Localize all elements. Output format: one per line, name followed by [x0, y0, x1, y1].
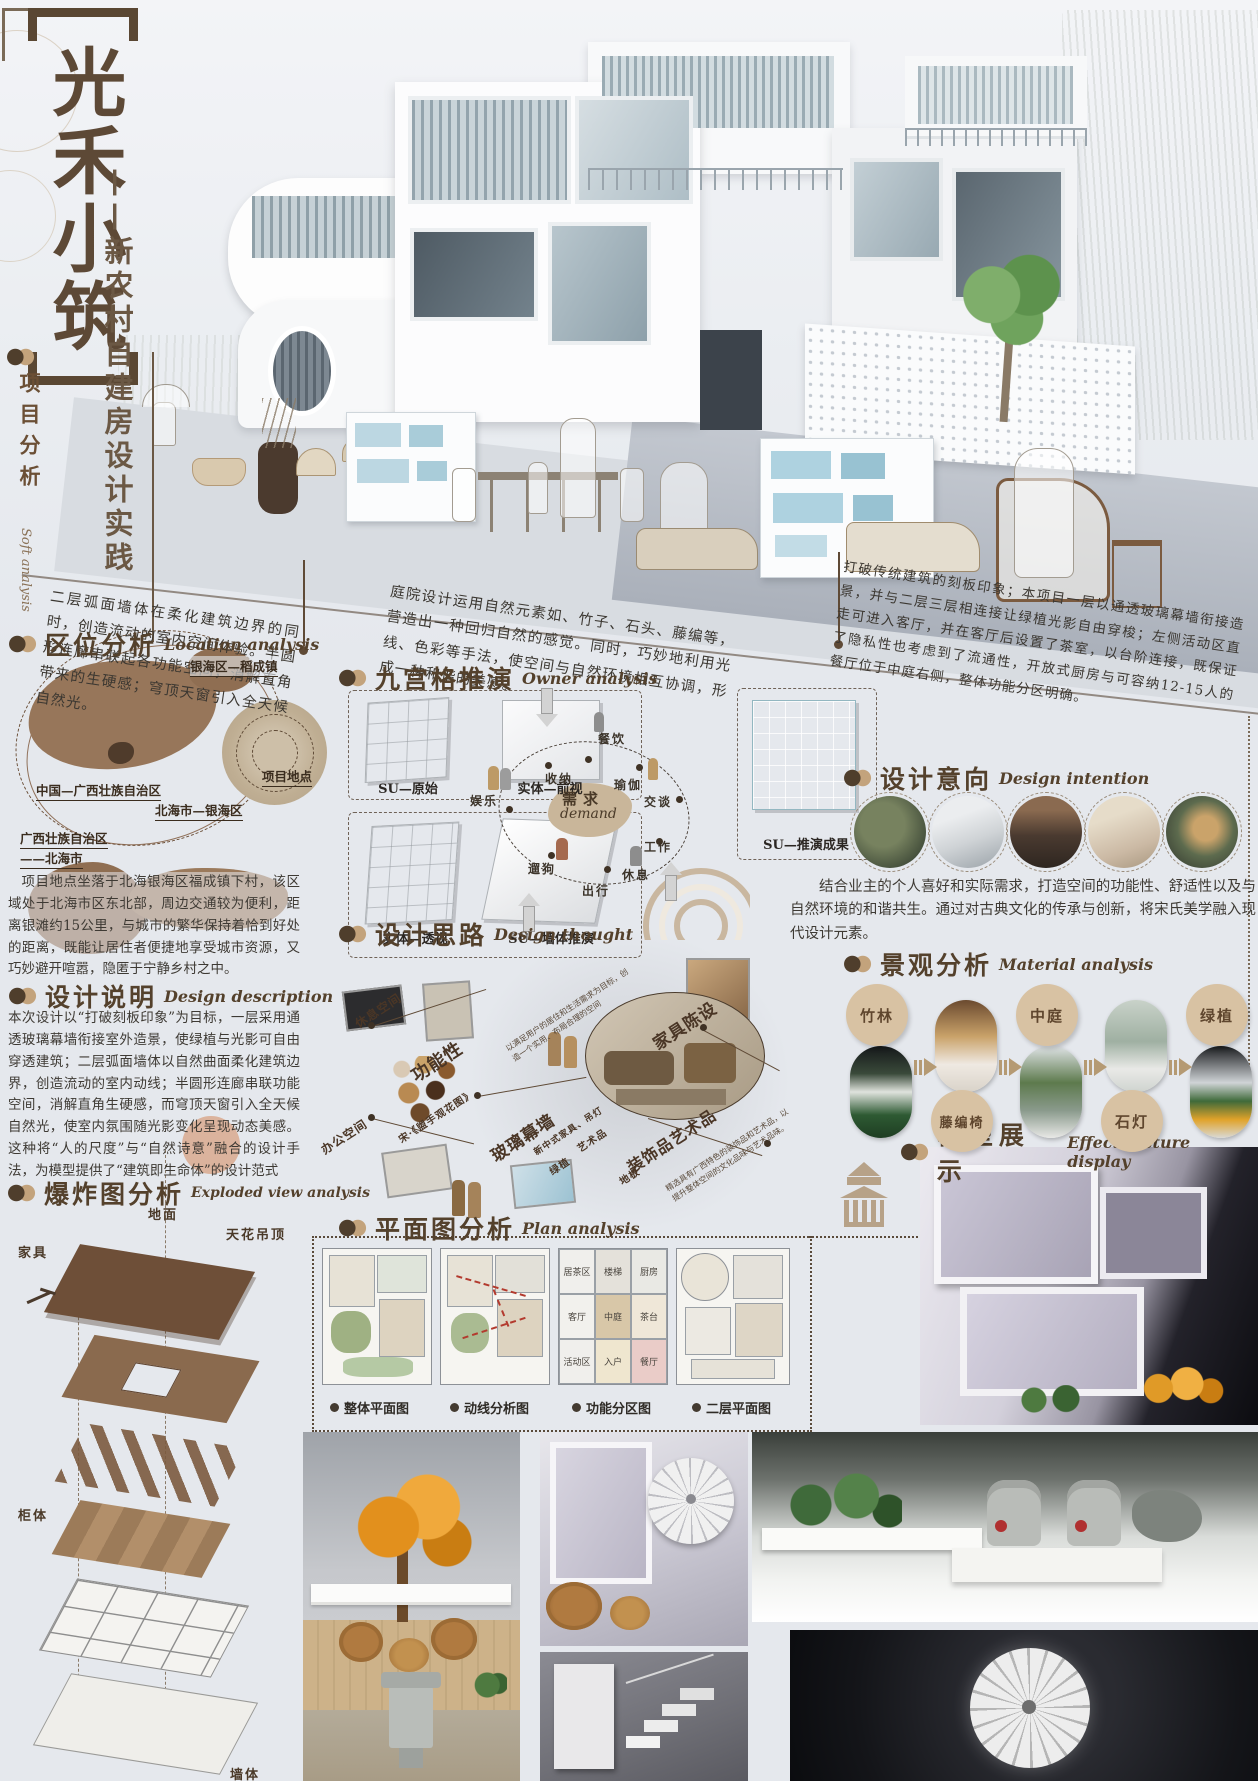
room-label: 餐厅	[640, 1355, 658, 1368]
room-label: 中庭	[604, 1310, 622, 1323]
house-window-slats-top	[408, 96, 571, 204]
section-plan: 平面图分析 Plan analysis	[338, 1210, 640, 1246]
section-bullet-icon	[7, 1184, 37, 1202]
material-heading: 景观分析	[880, 946, 992, 982]
thought-dot	[368, 1022, 375, 1029]
bowl-stack	[192, 458, 246, 486]
flower-vase	[258, 442, 298, 514]
room-label: 厨房	[640, 1265, 658, 1278]
house-window-glass-mid	[410, 228, 538, 321]
rings-motif	[640, 868, 750, 940]
thought-dot	[474, 1092, 481, 1099]
exploded-walls-plane	[39, 1578, 249, 1677]
thought-heading-en: Design thought	[494, 925, 633, 944]
map-label-city-2: ——北海市	[20, 848, 83, 869]
section-bullet-icon	[900, 1143, 930, 1161]
model-photo-corner	[920, 1147, 1258, 1425]
section-bullet-icon	[843, 955, 873, 973]
plan-caption-3: 二层平面图	[692, 1398, 771, 1417]
thought-dot	[700, 1024, 707, 1031]
need-storage: 收纳	[545, 770, 573, 787]
dining-table-sketch	[478, 472, 618, 480]
model-photo-stair-side	[540, 1652, 748, 1781]
dining-chair-sketch-2	[620, 468, 644, 522]
arrow-up-icon-2	[660, 862, 682, 901]
title-divider-line	[152, 352, 154, 642]
exploded-roof-plane	[44, 1244, 255, 1340]
plan-heading-en: Plan analysis	[522, 1219, 640, 1238]
caption-bullet-icon	[330, 1403, 339, 1412]
flow-arrow-icon	[999, 1058, 1022, 1076]
plan-second-floor	[676, 1248, 790, 1385]
model-heading-en: Effect picture display	[1067, 1133, 1258, 1171]
map-label-district: 北海市—银海区	[155, 800, 243, 821]
tree-foliage	[948, 252, 1073, 347]
house-railing	[588, 168, 843, 190]
material-label-text: 竹林	[860, 1005, 894, 1026]
plan-circulation	[440, 1248, 550, 1385]
caption-text: 功能分区图	[586, 1398, 651, 1417]
intention-heading-en: Design intention	[999, 769, 1149, 788]
side-label-bullet-icon	[6, 348, 36, 366]
room-label: 活动区	[563, 1355, 590, 1368]
map-label-china: 中国—广西壮族自治区	[36, 780, 161, 801]
house-right-window1	[850, 158, 943, 261]
flow-arrow-icon	[1084, 1058, 1107, 1076]
plan-caption-0: 整体平面图	[330, 1398, 409, 1417]
need-travel: 出行	[582, 882, 610, 899]
section-bullet-icon	[843, 769, 873, 787]
map-label-city-1: 广西壮族自治区	[20, 828, 108, 849]
rooftop-railing	[905, 128, 1087, 146]
location-body: 项目地点坐落于北海银海区福成镇下村，该区域处于北海市区东北部，周边交通较为便利，…	[8, 872, 300, 981]
model-photo-courtyard	[303, 1432, 520, 1781]
need-dot	[548, 852, 555, 859]
plan-zoning: 居茶区 楼梯 厨房 客厅 中庭 茶台 活动区 入户 餐厅	[558, 1248, 668, 1385]
vase-branches	[262, 398, 296, 448]
dining-chair-sketch	[452, 468, 476, 522]
section-material: 景观分析 Material analysis	[843, 946, 1153, 982]
need-dining: 餐饮	[598, 730, 626, 747]
owner-heading: 九宫格推演	[375, 660, 515, 696]
people-silhouette	[564, 1036, 577, 1068]
need-fun: 娱乐	[470, 792, 498, 809]
owner-heading-en: Owner analysis	[522, 669, 657, 688]
map-label-town: 银海区—稻成镇	[190, 656, 278, 677]
model-photo-spiral-dark	[790, 1630, 1258, 1781]
standing-elder-sketch	[560, 418, 596, 518]
model-photo-stair-top	[540, 1432, 748, 1646]
plan-caption-1: 动线分析图	[450, 1398, 529, 1417]
exploded-label-cabinet: 柜体	[18, 1505, 48, 1524]
material-heading-en: Material analysis	[999, 955, 1153, 974]
exploded-label-wall: 墙体	[230, 1764, 260, 1781]
section-intention: 设计意向 Design intention	[843, 760, 1149, 796]
caption-bullet-icon	[572, 1403, 581, 1412]
room-label: 楼梯	[604, 1265, 622, 1278]
exploded-furniture-plane	[55, 1423, 246, 1506]
caption-bullet-icon	[450, 1403, 459, 1412]
intention-photo-interior	[1162, 792, 1242, 872]
need-dot	[656, 838, 663, 845]
room-label: 客厅	[568, 1310, 586, 1323]
people-figure	[648, 758, 658, 780]
umbrella-lady-sketch	[152, 402, 176, 446]
people-figure	[630, 846, 642, 866]
intention-heading: 设计意向	[880, 760, 992, 796]
section-bullet-icon	[8, 635, 38, 653]
design-desc-heading-en: Design description	[164, 987, 333, 1006]
model-photo-lions	[752, 1432, 1258, 1622]
house-curved-slats	[252, 196, 402, 258]
need-dot	[585, 756, 592, 763]
section-design-desc: 设计说明 Design description	[8, 978, 333, 1014]
need-dot	[676, 796, 683, 803]
need-dot	[545, 762, 552, 769]
design-desc-heading: 设计说明	[45, 978, 157, 1014]
section-thought: 设计思路 Design thought	[338, 916, 633, 952]
poster-subtitle: ——新农村自建房设计实践	[96, 168, 138, 668]
need-rest: 休息	[622, 866, 650, 883]
title-bracket-top-icon	[28, 8, 138, 41]
section-bullet-icon	[338, 669, 368, 687]
need-dog: 遛狗	[528, 860, 556, 877]
house-entrance	[700, 330, 762, 430]
flow-arrow-icon	[1169, 1058, 1192, 1076]
plan-overall	[322, 1248, 432, 1385]
material-label-stonelamp: 石灯	[1101, 1090, 1163, 1152]
material-photo-rattan	[935, 1000, 997, 1092]
side-label: 项目分析	[14, 372, 44, 532]
thought-ref-image	[381, 1144, 453, 1199]
need-dot	[506, 806, 513, 813]
demand-title-en: demand	[560, 806, 617, 822]
material-label-text: 石灯	[1115, 1111, 1149, 1132]
thought-heading: 设计思路	[375, 916, 487, 952]
need-talk: 交谈	[644, 793, 672, 810]
location-heading-en: Location analysis	[164, 635, 319, 654]
need-dot	[604, 866, 611, 873]
thought-center-image	[585, 992, 765, 1120]
thought-node-office: 办公空间	[318, 1115, 371, 1158]
section-bullet-icon	[8, 987, 38, 1005]
intention-photo-modern	[928, 792, 1008, 872]
lounge-chair	[636, 528, 758, 570]
exploded-base-plane	[33, 1673, 258, 1775]
thought-ref-image	[422, 980, 474, 1041]
caption-text: 整体平面图	[344, 1398, 409, 1417]
section-bullet-icon	[338, 1219, 368, 1237]
section-bullet-icon	[338, 925, 368, 943]
exploded-label-ceiling: 天花吊顶	[226, 1224, 286, 1243]
room-label: 入户	[604, 1355, 622, 1368]
caption-text: 二层平面图	[706, 1398, 771, 1417]
material-photo-lantern	[1105, 1000, 1167, 1092]
child-sketch	[528, 462, 548, 514]
room-label: 茶台	[640, 1310, 658, 1323]
need-yoga: 瑜伽	[614, 776, 642, 793]
thought-dot	[764, 1140, 771, 1147]
material-label-text: 中庭	[1030, 1005, 1064, 1026]
intention-photo-garden	[850, 792, 930, 872]
reading-man-sketch	[1014, 448, 1074, 578]
cube-label-0: SU—原始	[358, 778, 458, 797]
people-figure	[594, 712, 604, 732]
exploded-label-ground: 地面	[148, 1204, 178, 1223]
map-label-site: 项目地点	[262, 766, 312, 787]
design-desc-body: 本次设计以“打破刻板印象”为目标，一层采用通透玻璃幕墙衔接室外造景，使绿植与光影…	[8, 1008, 300, 1183]
intention-body: 结合业主的个人喜好和实际需求，打造空间的功能性、舒适性以及与自然环境的和谐共生。…	[790, 876, 1256, 946]
caption-bullet-icon	[692, 1403, 701, 1412]
location-heading: 区位分析	[45, 626, 157, 662]
rooftop-pavilion-slats	[918, 66, 1073, 124]
material-label-text: 藤编椅	[939, 1112, 984, 1131]
intention-photo-beige	[1084, 792, 1164, 872]
room-label: 居茶区	[563, 1265, 590, 1278]
section-exploded: 爆炸图分析 Exploded view analysis	[7, 1175, 370, 1211]
exploded-label-furniture: 家具	[18, 1242, 48, 1261]
exploded-heading-en: Exploded view analysis	[191, 1185, 370, 1201]
caption-text: 动线分析图	[464, 1398, 529, 1417]
material-label-bamboo: 竹林	[846, 984, 908, 1046]
people-figure	[556, 838, 568, 860]
thought-dot	[368, 1114, 375, 1121]
intention-photo-gate	[1006, 792, 1086, 872]
plan-caption-2: 功能分区图	[572, 1398, 651, 1417]
flow-arrow-icon	[914, 1058, 937, 1076]
poster: 光禾小筑 ——新农村自建房设计实践 项目分析 Soft analysis 二层弧…	[0, 0, 1258, 1781]
material-label-courtyard: 中庭	[1016, 984, 1078, 1046]
section-owner: 九宫格推演 Owner analysis	[338, 660, 657, 696]
pagoda-icon	[836, 1162, 892, 1240]
material-label-rattan: 藤编椅	[931, 1090, 993, 1152]
house-window-glass-mid2	[548, 222, 651, 345]
plan-heading: 平面图分析	[375, 1210, 515, 1246]
material-label-text: 绿植	[1200, 1005, 1234, 1026]
need-dot	[636, 764, 643, 771]
material-label-plants: 绿植	[1186, 984, 1248, 1046]
